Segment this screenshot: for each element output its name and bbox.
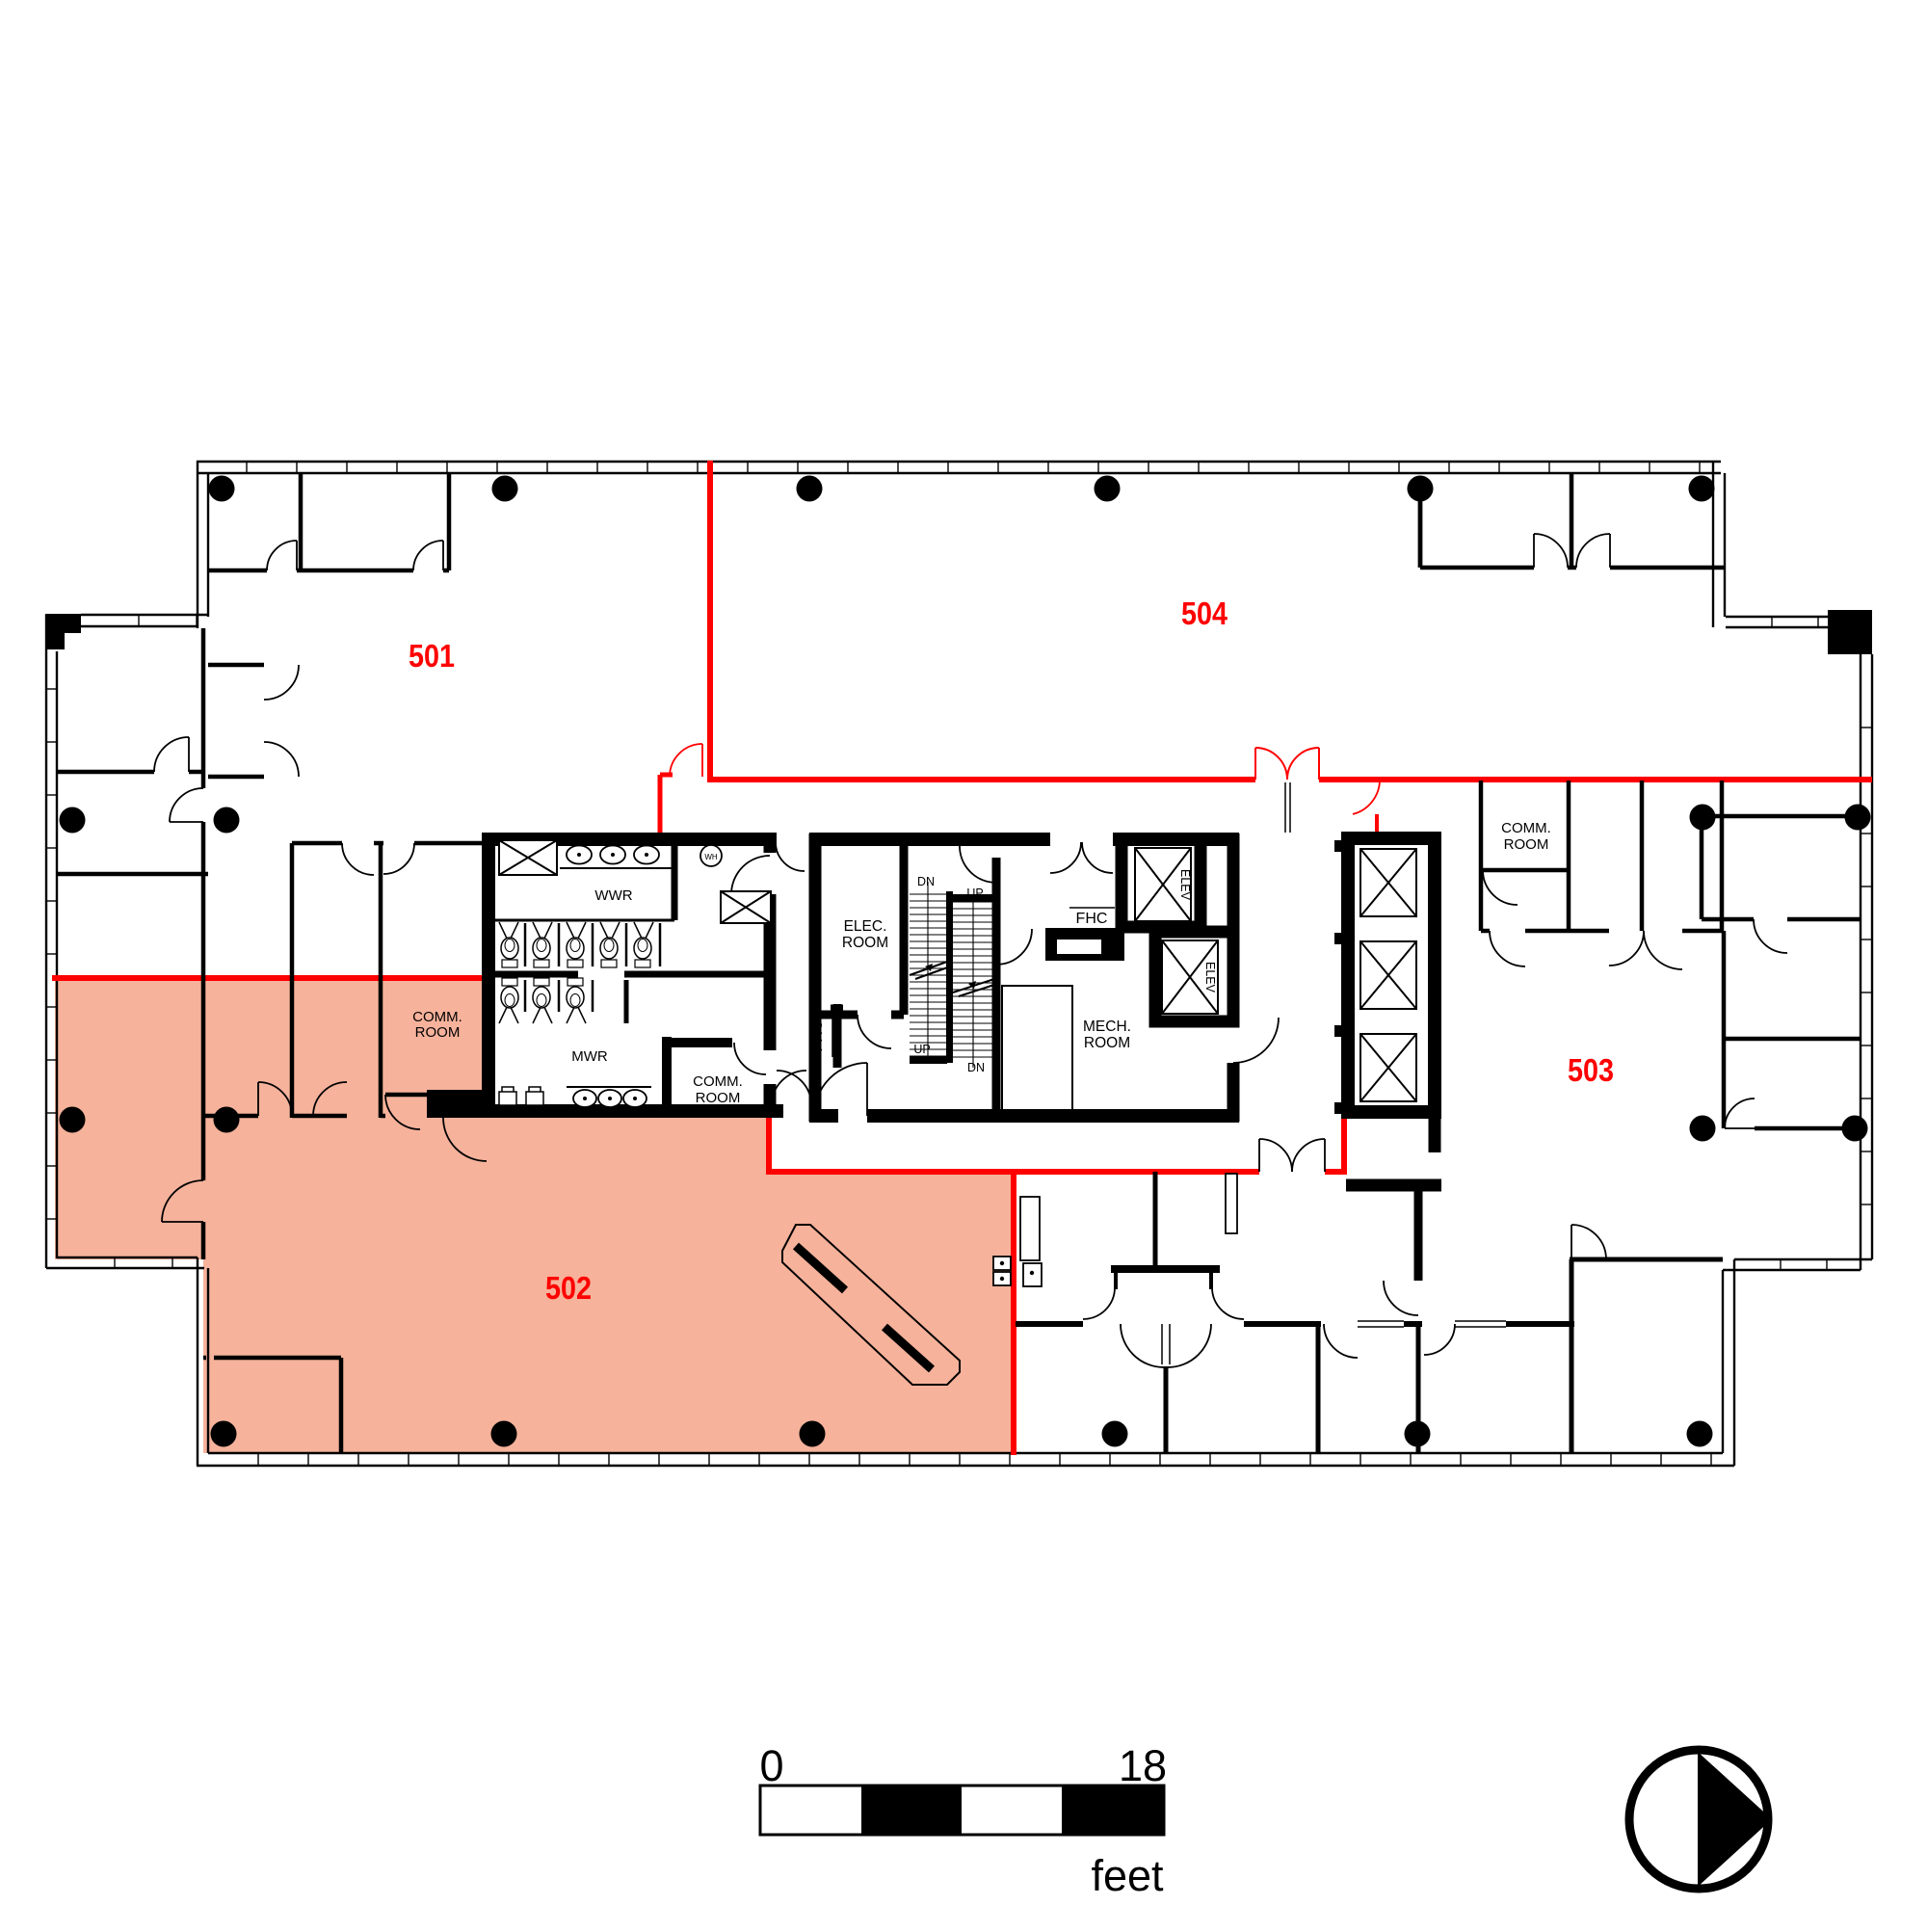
svg-text:502: 502 [545,1270,592,1306]
svg-text:ELEC.: ELEC. [844,918,887,935]
svg-text:COMM.: COMM. [693,1073,743,1090]
svg-text:ROOM: ROOM [1504,836,1549,853]
svg-text:ROOM: ROOM [415,1024,461,1041]
svg-text:DN: DN [917,875,935,888]
svg-text:ELEV: ELEV [1426,960,1439,992]
svg-text:COMM.: COMM. [1501,820,1551,836]
svg-text:503: 503 [1568,1052,1614,1088]
svg-text:18: 18 [1119,1741,1167,1790]
svg-text:FHC: FHC [809,1020,826,1052]
svg-text:ROOM: ROOM [842,935,888,951]
svg-text:COMM.: COMM. [412,1009,462,1025]
svg-text:501: 501 [409,638,455,674]
svg-text:MECH.: MECH. [1083,1019,1131,1035]
svg-text:UP: UP [913,1043,930,1056]
svg-text:WWR: WWR [594,887,632,904]
svg-text:ROOM: ROOM [696,1090,741,1106]
svg-text:ELEV: ELEV [1426,867,1439,899]
svg-text:504: 504 [1181,595,1228,631]
svg-text:UP: UP [966,887,983,900]
svg-text:MWR: MWR [571,1048,608,1065]
svg-text:WH: WH [704,853,718,861]
svg-text:ROOM: ROOM [1084,1035,1130,1051]
svg-text:DN: DN [967,1061,985,1074]
svg-text:feet: feet [1091,1851,1164,1900]
svg-text:0: 0 [759,1741,783,1790]
svg-text:ELEV: ELEV [1426,1052,1439,1084]
svg-text:ELEV: ELEV [1178,869,1192,901]
svg-text:FHC: FHC [1076,911,1108,927]
svg-text:ELEV: ELEV [1203,962,1217,993]
